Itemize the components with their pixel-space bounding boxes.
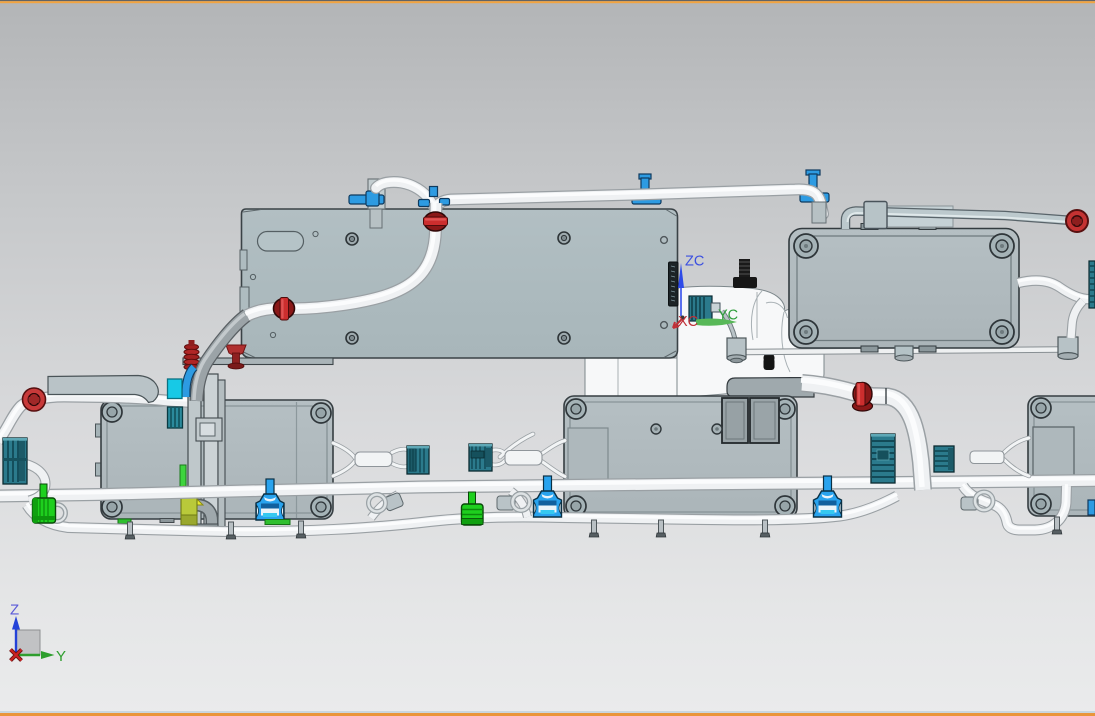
svg-text:XC: XC <box>678 314 698 330</box>
svg-text:Y: Y <box>56 648 66 665</box>
svg-text:YC: YC <box>718 308 738 324</box>
svg-text:Z: Z <box>10 602 19 619</box>
svg-text:ZC: ZC <box>685 254 704 270</box>
